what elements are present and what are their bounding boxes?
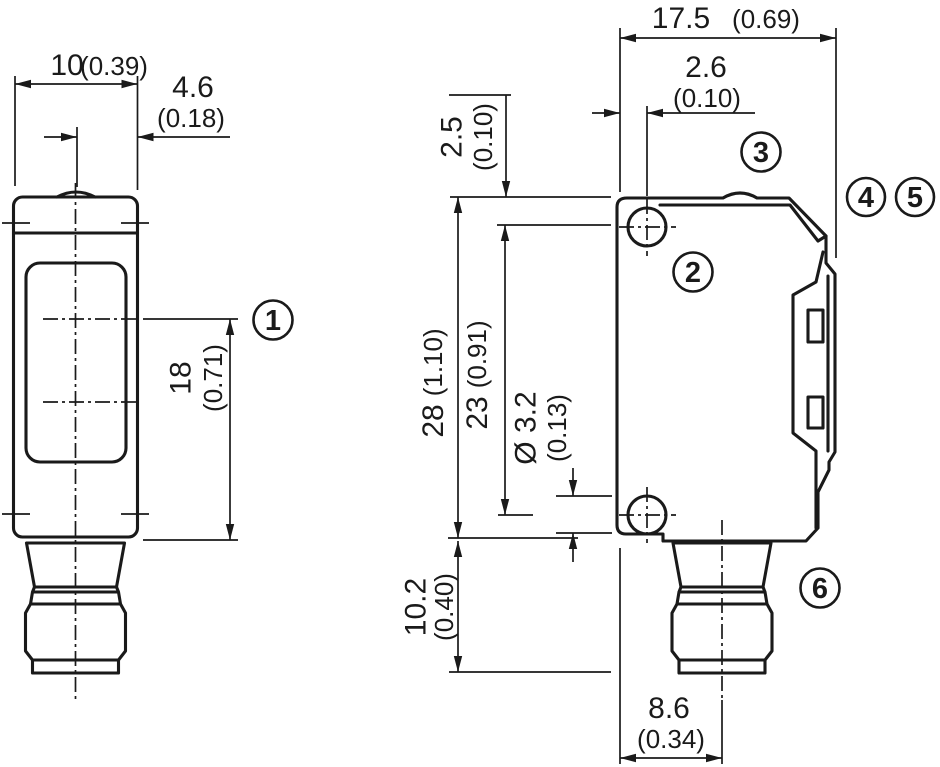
dim-hole-diameter-mm: Ø 3.2 bbox=[510, 391, 543, 464]
dim-height-mm: 28 bbox=[417, 404, 450, 437]
dim-hole-diameter: Ø 3.2 (0.13) bbox=[510, 391, 613, 562]
dim-connector-length-in: (0.40) bbox=[429, 573, 459, 641]
callout-2: 2 bbox=[674, 253, 713, 292]
dim-beam-to-bottom-mm: 18 bbox=[165, 361, 198, 394]
dim-hole-spacing-mm: 23 bbox=[461, 396, 494, 429]
side-view bbox=[617, 193, 835, 700]
dim-front-width-mm: 10 bbox=[50, 49, 83, 82]
dim-top-hole: 2.5 (0.10) bbox=[436, 95, 612, 225]
front-view bbox=[2, 183, 149, 700]
dim-hole-edge: 2.6 (0.10) bbox=[592, 51, 755, 196]
dim-front-width: 10 (0.39) bbox=[15, 49, 148, 190]
dim-top-hole-in: (0.10) bbox=[468, 103, 498, 171]
dim-hole-edge-mm: 2.6 bbox=[685, 51, 727, 84]
dim-top-hole-mm: 2.5 bbox=[436, 116, 469, 158]
callout-4: 4 bbox=[847, 178, 885, 216]
callout-4-label: 4 bbox=[858, 182, 874, 214]
callout-6-label: 6 bbox=[812, 573, 828, 605]
dim-depth-in: (0.69) bbox=[732, 4, 800, 34]
dim-front-width-in: (0.39) bbox=[80, 51, 148, 81]
dim-connector-length: 10.2 (0.40) bbox=[400, 541, 612, 672]
dimensional-drawing-page: 10 (0.39) 4.6 (0.18) 18 (0.71) 17.5 (0.6… bbox=[0, 0, 940, 767]
svg-text:28(1.10): 28(1.10) bbox=[417, 328, 450, 437]
callout-3: 3 bbox=[742, 133, 781, 172]
dim-connector-offset-mm: 8.6 bbox=[648, 692, 690, 725]
svg-text:23(0.91): 23(0.91) bbox=[461, 320, 494, 429]
callout-5: 5 bbox=[896, 178, 934, 216]
dim-height-in: (1.10) bbox=[418, 328, 448, 396]
callout-3-label: 3 bbox=[753, 137, 769, 169]
dim-connector-offset-in: (0.34) bbox=[637, 724, 705, 754]
dim-axis-offset-in: (0.18) bbox=[157, 103, 225, 133]
dim-depth-mm: 17.5 bbox=[652, 2, 710, 35]
callout-2-label: 2 bbox=[685, 257, 701, 289]
dim-hole-spacing-in: (0.91) bbox=[462, 320, 492, 388]
dim-height: 28(1.10) bbox=[417, 197, 579, 538]
dimension-drawing: 10 (0.39) 4.6 (0.18) 18 (0.71) 17.5 (0.6… bbox=[0, 0, 940, 767]
dim-beam-to-bottom: 18 (0.71) bbox=[143, 319, 238, 540]
dim-hole-spacing: 23(0.91) bbox=[461, 225, 534, 515]
callout-1: 1 bbox=[254, 301, 293, 340]
callout-1-label: 1 bbox=[265, 305, 281, 337]
callout-6: 6 bbox=[801, 569, 840, 608]
dim-axis-offset-mm: 4.6 bbox=[172, 71, 214, 104]
dim-hole-diameter-in: (0.13) bbox=[542, 394, 572, 462]
callout-5-label: 5 bbox=[907, 182, 923, 214]
dim-connector-length-mm: 10.2 bbox=[400, 578, 433, 636]
dim-hole-edge-in: (0.10) bbox=[673, 83, 741, 113]
dim-beam-to-bottom-in: (0.71) bbox=[198, 344, 228, 412]
